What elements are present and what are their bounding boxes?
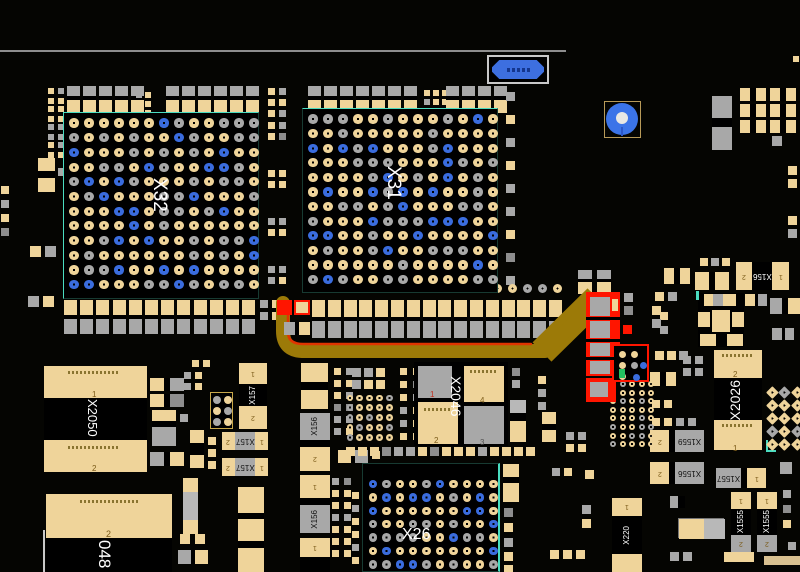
pad-cluster	[433, 99, 439, 105]
bga-pad	[369, 560, 378, 569]
pad-cluster	[136, 92, 142, 98]
bga-pad	[323, 275, 332, 284]
capacitor[interactable]	[312, 300, 325, 338]
capacitor[interactable]	[161, 300, 174, 334]
pad-cluster	[260, 300, 268, 308]
component-X157[interactable]: 2X1571	[222, 458, 268, 476]
bga-pad	[383, 231, 392, 240]
pad	[150, 452, 164, 466]
bga-pad	[189, 207, 198, 216]
capacitor[interactable]	[770, 104, 796, 117]
highlighted-pad[interactable]	[294, 300, 310, 315]
pad-cluster	[352, 368, 361, 377]
capacitor[interactable]	[359, 300, 372, 338]
bga-pad	[174, 192, 183, 201]
capacitor[interactable]	[740, 104, 766, 117]
pad	[793, 56, 799, 62]
bga-pad	[428, 246, 437, 255]
bga-pad	[458, 144, 467, 153]
bga-pad	[458, 158, 467, 167]
component-X156[interactable]: 2X1561	[736, 262, 789, 290]
bga-pad	[84, 148, 93, 157]
capacitor[interactable]	[226, 300, 239, 334]
capacitor[interactable]	[502, 300, 515, 338]
label: 1	[733, 438, 737, 456]
capacitor[interactable]	[740, 120, 766, 133]
pad	[586, 357, 620, 360]
bga-pad	[338, 260, 347, 269]
bga-pad	[219, 177, 228, 186]
bga-pad	[234, 133, 243, 142]
capacitor[interactable]	[96, 300, 109, 334]
pad-cluster	[430, 447, 439, 456]
bga-pad	[443, 202, 452, 211]
pad: X156	[300, 413, 330, 440]
pad	[590, 297, 610, 316]
component-X1557[interactable]: X15571	[716, 468, 766, 488]
capacitor[interactable]	[375, 300, 388, 338]
pad	[183, 520, 198, 534]
pad-cluster	[624, 306, 633, 315]
bga-pad	[84, 280, 93, 289]
capacitor[interactable]	[549, 300, 562, 338]
bga-pad	[338, 158, 347, 167]
pad-cluster	[788, 166, 797, 175]
pad: 2	[300, 447, 330, 471]
bga-pad	[396, 493, 405, 502]
bga-pad	[766, 425, 778, 437]
pad: 2	[736, 262, 752, 290]
bga-pad	[368, 217, 377, 226]
capacitor[interactable]	[678, 518, 724, 538]
capacitor[interactable]	[344, 300, 357, 338]
bga-pad	[639, 415, 645, 421]
bga-pad	[386, 395, 393, 402]
bga-pad	[174, 133, 183, 142]
component-X1555[interactable]: 1X15552	[757, 492, 777, 552]
capacitor[interactable]	[210, 300, 223, 334]
bga-pad	[189, 280, 198, 289]
bga-pad	[144, 251, 153, 260]
capacitor[interactable]	[80, 300, 93, 334]
capacitor[interactable]	[772, 328, 794, 340]
capacitor[interactable]	[64, 300, 77, 334]
capacitor[interactable]	[407, 300, 420, 338]
capacitor[interactable]	[301, 363, 328, 409]
bga-pad	[189, 118, 198, 127]
component-X1555[interactable]: 1X15552	[731, 492, 751, 552]
pad-cluster	[442, 447, 451, 456]
capacitor[interactable]	[328, 300, 341, 338]
bga-pad	[144, 221, 153, 230]
bga-pad	[234, 163, 243, 172]
bga-pad	[99, 207, 108, 216]
pad-cluster	[406, 447, 415, 456]
bga-pad	[114, 207, 123, 216]
pad	[210, 300, 223, 315]
bga-pad	[413, 202, 422, 211]
label: X31	[384, 166, 403, 200]
pad	[238, 519, 264, 541]
bga-pad	[383, 129, 392, 138]
capacitor[interactable]	[438, 300, 451, 338]
pad: X157	[239, 384, 267, 406]
bga-pad	[84, 251, 93, 260]
highlighted-pad[interactable]	[277, 300, 292, 315]
bga-pad	[386, 424, 393, 431]
pad-cluster	[695, 356, 703, 364]
bga-pad	[308, 275, 317, 284]
pad	[300, 557, 330, 572]
component-X157[interactable]: 1X1572	[239, 363, 267, 429]
capacitor[interactable]	[238, 487, 264, 572]
pad	[28, 296, 39, 307]
pad-cluster	[208, 461, 216, 469]
bga-pad	[69, 148, 78, 157]
capacitor[interactable]	[664, 268, 690, 284]
pad-cluster	[344, 550, 351, 557]
bga-pad	[129, 133, 138, 142]
pad-cluster	[683, 356, 691, 364]
bga-pad	[219, 221, 228, 230]
capacitor[interactable]	[198, 86, 211, 113]
pad	[312, 321, 325, 338]
label: X157	[249, 386, 257, 405]
capacitor[interactable]	[284, 322, 310, 335]
pad-cluster	[195, 383, 202, 390]
bga-pad	[69, 251, 78, 260]
pad	[786, 88, 796, 101]
pad	[454, 321, 467, 338]
bga-pad	[323, 231, 332, 240]
pad	[631, 351, 638, 358]
pad-row	[553, 284, 562, 293]
label: X156	[753, 272, 772, 280]
bga-pad	[368, 144, 377, 153]
bga-pad	[353, 144, 362, 153]
capacitor[interactable]	[423, 300, 436, 338]
capacitor[interactable]	[150, 452, 184, 466]
pad	[585, 470, 594, 479]
bga-pad	[766, 399, 778, 411]
capacitor[interactable]	[183, 478, 198, 534]
bga-pad	[144, 280, 153, 289]
pad	[183, 492, 198, 520]
pad-cluster	[279, 229, 286, 236]
capacitor[interactable]	[242, 300, 255, 334]
label: 1	[430, 384, 434, 402]
pad: 1	[747, 468, 766, 488]
pad	[113, 300, 126, 315]
bga-pad	[398, 129, 407, 138]
capacitor[interactable]	[454, 300, 467, 338]
pad	[664, 268, 674, 284]
bga-pad	[204, 118, 213, 127]
pad-cluster	[783, 520, 791, 528]
bga-pad	[778, 412, 790, 424]
pad	[198, 86, 211, 96]
capacitor[interactable]	[214, 86, 227, 113]
capacitor[interactable]: 1	[300, 538, 330, 572]
bga-pad	[114, 192, 123, 201]
label: X1559	[678, 437, 701, 445]
pad	[80, 319, 93, 334]
capacitor[interactable]	[150, 394, 184, 407]
pad-cluster	[400, 433, 407, 440]
pad-cluster	[195, 372, 202, 379]
pad	[312, 300, 325, 317]
bga-pad	[443, 217, 452, 226]
bga-pad	[383, 260, 392, 269]
pad-cluster	[582, 519, 591, 528]
pad	[640, 362, 647, 369]
bga-pad	[338, 231, 347, 240]
pad: X1559	[675, 430, 704, 452]
bga-pad	[129, 192, 138, 201]
bga-pad	[473, 158, 482, 167]
bga-pad	[443, 173, 452, 182]
capacitor[interactable]	[246, 86, 259, 113]
pad-cluster	[1, 200, 9, 208]
capacitor[interactable]	[190, 430, 204, 468]
pad-cluster	[394, 447, 403, 456]
bga-pad	[144, 265, 153, 274]
capacitor[interactable]	[131, 86, 144, 113]
pad	[770, 88, 780, 101]
screw-hole-mark	[621, 127, 623, 136]
capacitor[interactable]	[38, 158, 55, 192]
bga-pad	[99, 236, 108, 245]
dock-connector-icon[interactable]	[492, 60, 544, 79]
pcb-board[interactable]: 2X15612X202612X15592X1556X155711X155521X…	[0, 0, 800, 572]
capacitor[interactable]	[83, 86, 96, 113]
capacitor[interactable]	[542, 412, 556, 442]
bga-pad	[219, 118, 228, 127]
pad	[226, 300, 239, 315]
capacitor[interactable]	[99, 86, 112, 113]
pad: 2	[222, 458, 235, 476]
capacitor[interactable]	[695, 272, 729, 290]
bga-pad	[174, 265, 183, 274]
capacitor[interactable]	[194, 300, 207, 334]
bga-pad	[428, 217, 437, 226]
bga-pad	[174, 163, 183, 172]
pad	[407, 300, 420, 317]
capacitor[interactable]	[178, 550, 208, 564]
bga-pad	[610, 441, 616, 447]
bga-pad	[489, 547, 498, 556]
bga-pad	[353, 260, 362, 269]
pad	[301, 363, 328, 382]
bga-pad	[249, 221, 258, 230]
pad-cluster	[566, 444, 574, 452]
bga-pad	[204, 177, 213, 186]
pad-cluster	[358, 447, 367, 456]
bga-pad	[99, 133, 108, 142]
bga-pad	[443, 260, 452, 269]
pad	[80, 300, 93, 315]
pad-cluster	[722, 258, 730, 266]
bga-pad	[368, 246, 377, 255]
pad-cluster	[279, 218, 286, 225]
bga-pad	[129, 221, 138, 230]
bga-pad	[413, 187, 422, 196]
capacitor[interactable]	[129, 300, 142, 334]
bga-pad	[249, 265, 258, 274]
pad	[423, 321, 436, 338]
bga-pad	[219, 207, 228, 216]
pad-cluster	[346, 447, 355, 456]
capacitor[interactable]	[391, 300, 404, 338]
bga-pad	[639, 433, 645, 439]
pad	[517, 321, 530, 338]
pad-cluster	[332, 502, 339, 509]
pad	[64, 319, 77, 334]
pad	[214, 86, 227, 96]
pad	[619, 362, 626, 369]
pad	[680, 268, 690, 284]
capacitor[interactable]	[770, 120, 796, 133]
pad-cluster	[504, 523, 513, 532]
bga-pad	[129, 280, 138, 289]
pad: 2	[731, 535, 751, 552]
bga-pad	[791, 425, 800, 437]
bga-pad	[422, 560, 431, 569]
bga-pad	[428, 158, 437, 167]
bga-pad	[69, 236, 78, 245]
capacitor[interactable]	[597, 270, 611, 294]
capacitor[interactable]	[533, 300, 546, 338]
bga-pad	[369, 533, 378, 542]
capacitor[interactable]	[115, 86, 128, 113]
component-X1559[interactable]: 2X1559	[650, 430, 704, 452]
pad-cluster	[664, 400, 672, 408]
bga-pad	[463, 560, 472, 569]
pad	[732, 312, 744, 327]
pad	[99, 86, 112, 96]
label: 2	[434, 430, 438, 448]
pad	[462, 86, 475, 96]
capacitor[interactable]	[670, 496, 685, 508]
pad	[308, 86, 321, 96]
pad	[145, 300, 158, 315]
pad-cluster	[364, 380, 373, 389]
pad: X156	[300, 505, 330, 533]
bga-pad	[347, 424, 354, 431]
bga-pad	[368, 231, 377, 240]
bga-pad	[84, 177, 93, 186]
pad-cluster	[48, 124, 54, 130]
capacitor[interactable]	[740, 88, 766, 101]
bga-pad	[413, 129, 422, 138]
bga-pad	[382, 480, 391, 489]
component-X220[interactable]: 1X220	[612, 498, 642, 572]
pad	[470, 300, 483, 317]
component-X157[interactable]: 2X1571	[222, 432, 268, 450]
capacitor[interactable]	[67, 86, 80, 113]
bga-pad	[144, 148, 153, 157]
pad	[43, 530, 45, 572]
bga-pad	[382, 547, 391, 556]
pad	[96, 300, 109, 315]
pad	[780, 462, 792, 474]
bga-pad	[249, 280, 258, 289]
bga-pad	[443, 114, 452, 123]
pad-cluster	[344, 478, 351, 485]
capacitor[interactable]	[182, 86, 195, 113]
bga-pad	[159, 163, 168, 172]
capacitor[interactable]	[470, 300, 483, 338]
pad	[38, 178, 55, 192]
pad	[785, 328, 794, 340]
chip-label-X31: X31	[384, 166, 403, 205]
bga-pad	[620, 398, 626, 404]
pad-cluster	[563, 550, 572, 559]
bga-pad	[398, 260, 407, 269]
capacitor[interactable]	[152, 410, 176, 446]
capacitor[interactable]	[177, 300, 190, 334]
capacitor[interactable]	[745, 294, 767, 306]
pad	[145, 319, 158, 334]
bga-pad	[308, 246, 317, 255]
capacitor[interactable]	[113, 300, 126, 334]
capacitor[interactable]	[166, 86, 179, 113]
bga-pad	[69, 118, 78, 127]
capacitor[interactable]	[486, 300, 499, 338]
capacitor[interactable]	[150, 378, 184, 391]
bga-pad	[610, 407, 616, 413]
capacitor[interactable]	[145, 300, 158, 334]
bga-pad	[99, 251, 108, 260]
bga-pad	[413, 246, 422, 255]
pad-cluster	[48, 116, 54, 122]
pad-cluster	[332, 538, 339, 545]
capacitor[interactable]	[578, 270, 592, 294]
capacitor[interactable]	[517, 300, 530, 338]
bga-pad	[366, 395, 373, 402]
capacitor[interactable]	[503, 464, 519, 502]
bga-pad	[99, 163, 108, 172]
bga-pad	[249, 177, 258, 186]
bga-pad	[369, 493, 378, 502]
bga-pad	[338, 202, 347, 211]
component-X1556[interactable]: 2X1556	[650, 462, 704, 484]
bga-pad	[219, 133, 228, 142]
pad-cluster	[268, 181, 275, 188]
pad-cluster	[58, 88, 64, 94]
bga-pad	[413, 260, 422, 269]
pad-cluster	[268, 218, 275, 225]
bga-pad	[249, 236, 258, 245]
capacitor[interactable]	[770, 88, 796, 101]
bga-pad	[353, 231, 362, 240]
bga-pad	[428, 187, 437, 196]
capacitor[interactable]	[770, 298, 800, 314]
pad-cluster	[268, 277, 275, 284]
pad	[83, 86, 96, 96]
capacitor[interactable]	[230, 86, 243, 113]
bga-pad	[620, 424, 626, 430]
component-X156[interactable]: 1X156	[300, 475, 330, 533]
capacitor[interactable]	[510, 400, 526, 442]
pad-cluster	[352, 544, 359, 551]
pad-cluster	[352, 531, 359, 538]
bga-pad	[458, 246, 467, 255]
component-X156[interactable]: X1562	[300, 413, 330, 471]
bga-pad	[356, 424, 363, 431]
bga-pad	[422, 493, 431, 502]
capacitor[interactable]	[712, 96, 732, 150]
